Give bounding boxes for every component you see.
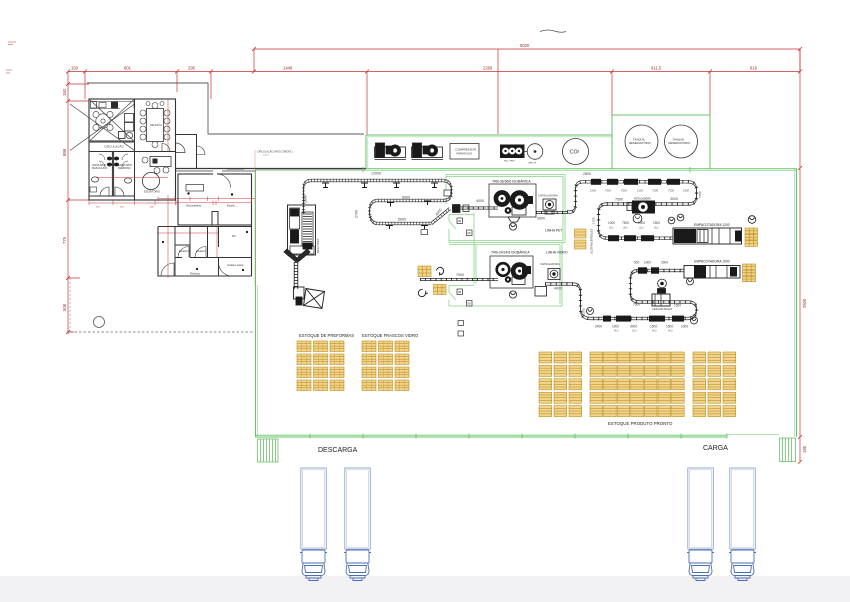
svg-text:CIRCULAÇÃO: CIRCULAÇÃO <box>104 144 124 149</box>
svg-text:1000: 1000 <box>644 261 651 265</box>
svg-text:5600: 5600 <box>398 218 406 222</box>
svg-text:DESCARGA: DESCARGA <box>318 447 358 454</box>
svg-text:5020: 5020 <box>520 43 530 48</box>
svg-text:TRB-24/24/6 ISOBÁRICA: TRB-24/24/6 ISOBÁRICA <box>491 251 530 255</box>
svg-text:3000: 3000 <box>670 197 678 201</box>
svg-text:1400x1050 PALLET: 1400x1050 PALLET <box>652 308 673 311</box>
svg-text:1000: 1000 <box>608 221 615 225</box>
svg-text:1500: 1500 <box>650 325 657 329</box>
svg-text:1500: 1500 <box>590 189 596 193</box>
svg-text:2800: 2800 <box>304 195 308 203</box>
svg-text:7500: 7500 <box>633 303 640 307</box>
svg-text:1000: 1000 <box>681 325 688 329</box>
svg-text:RESERVATÓRIO: RESERVATÓRIO <box>669 140 692 145</box>
svg-text:(2x): (2x) <box>639 226 644 230</box>
svg-text:WC: WC <box>232 235 236 238</box>
svg-text:150: 150 <box>62 88 67 96</box>
svg-text:(4x): (4x) <box>614 329 619 333</box>
svg-text:295: 295 <box>188 66 196 71</box>
svg-text:(6x): (6x) <box>609 226 614 230</box>
svg-text:6000: 6000 <box>402 196 410 200</box>
svg-text:775: 775 <box>62 236 67 244</box>
svg-text:2400: 2400 <box>595 325 602 329</box>
svg-text:7500: 7500 <box>652 189 658 193</box>
svg-text:FEMININO: FEMININO <box>118 166 131 170</box>
svg-text:801: 801 <box>124 66 132 71</box>
svg-text:3000: 3000 <box>630 325 637 329</box>
svg-text:GB: GB <box>458 220 462 223</box>
svg-text:508: 508 <box>62 303 67 311</box>
svg-text:MULTIPET: MULTIPET <box>316 238 320 253</box>
svg-text:ESTOQUE PRODUTO PRONTO: ESTOQUE PRODUTO PRONTO <box>608 421 673 426</box>
svg-text:SEC. FRIO: SEC. FRIO <box>504 161 515 163</box>
svg-text:(4x): (4x) <box>652 329 657 333</box>
svg-text:Vestiário sócios: Vestiário sócios <box>227 264 244 267</box>
svg-text:LINHA VIDRO: LINHA VIDRO <box>546 251 568 255</box>
svg-text:1500: 1500 <box>637 189 643 193</box>
svg-text:1500: 1500 <box>674 304 681 308</box>
svg-text:7500: 7500 <box>615 198 623 202</box>
svg-text:CO²: CO² <box>570 150 580 156</box>
svg-text:ROTULADORA: ROTULADORA <box>634 198 651 201</box>
svg-text:12000: 12000 <box>371 172 381 176</box>
svg-text:7500: 7500 <box>668 189 674 193</box>
svg-text:GB: GB <box>467 232 471 235</box>
svg-text:CIRCULAÇÃO (PISO CIMENT.): CIRCULAÇÃO (PISO CIMENT.) <box>257 151 293 154</box>
svg-text:1500: 1500 <box>638 221 645 225</box>
svg-text:7500: 7500 <box>456 273 464 277</box>
svg-text:GER. N²: GER. N² <box>528 162 537 165</box>
svg-text:ESTOQUE DE PREFORMAS: ESTOQUE DE PREFORMAS <box>299 333 354 338</box>
svg-text:1500: 1500 <box>653 221 660 225</box>
svg-text:GB: GB <box>458 291 462 294</box>
svg-text:ESTOQUE FRASCOS VIDRO: ESTOQUE FRASCOS VIDRO <box>362 333 419 338</box>
svg-text:Almoxarifado: Almoxarifado <box>186 204 202 208</box>
svg-text:Exped.....: Exped..... <box>227 204 238 208</box>
svg-text:1000: 1000 <box>612 325 619 329</box>
svg-text:7500: 7500 <box>622 221 629 225</box>
svg-text:CAPSULADORA: CAPSULADORA <box>540 262 560 266</box>
svg-text:1200: 1200 <box>582 308 586 315</box>
svg-text:(2x): (2x) <box>632 329 637 333</box>
svg-text:EMPACOTADORA 1000: EMPACOTADORA 1000 <box>694 260 730 264</box>
svg-text:7500: 7500 <box>605 189 611 193</box>
svg-text:(6x): (6x) <box>623 226 628 230</box>
svg-text:1500: 1500 <box>698 191 702 198</box>
svg-text:GB: GB <box>467 303 471 306</box>
svg-text:Refeitório: Refeitório <box>190 273 201 276</box>
svg-text:TRB-36/36/6 ISOBÁRICA: TRB-36/36/6 ISOBÁRICA <box>492 180 531 184</box>
svg-text:3000: 3000 <box>661 261 668 265</box>
svg-text:Lavabo F: Lavabo F <box>196 250 207 253</box>
svg-text:500: 500 <box>634 261 640 265</box>
svg-text:RESERVATÓRIO: RESERVATÓRIO <box>629 140 652 145</box>
svg-text:e=2cm: e=2cm <box>263 155 269 157</box>
svg-text:3500: 3500 <box>537 217 545 221</box>
svg-text:911,5: 911,5 <box>651 66 662 71</box>
svg-text:2269: 2269 <box>483 66 493 71</box>
svg-text:LINHA PET: LINHA PET <box>545 229 562 233</box>
svg-text:7500: 7500 <box>621 189 627 193</box>
svg-text:CARGA: CARGA <box>703 445 728 452</box>
svg-text:1500: 1500 <box>683 189 689 193</box>
svg-text:PARAFUSO: PARAFUSO <box>457 152 473 156</box>
svg-text:1500: 1500 <box>666 325 673 329</box>
svg-text:4000: 4000 <box>476 199 484 203</box>
svg-text:195: 195 <box>802 445 807 453</box>
svg-text:Lavabo M: Lavabo M <box>179 250 190 253</box>
svg-text:2700: 2700 <box>355 210 359 218</box>
svg-text:1449: 1449 <box>283 66 293 71</box>
svg-text:(6x): (6x) <box>654 226 659 230</box>
svg-text:898: 898 <box>62 148 67 156</box>
svg-text:819: 819 <box>750 66 758 71</box>
svg-text:MASCULINO: MASCULINO <box>92 166 107 170</box>
svg-text:2800: 2800 <box>583 172 591 176</box>
svg-text:4000: 4000 <box>554 287 562 291</box>
svg-text:EMPACOTADORA 1200: EMPACOTADORA 1200 <box>694 223 730 227</box>
svg-text:1700: 1700 <box>592 217 596 224</box>
svg-text:(4x): (4x) <box>668 329 673 333</box>
svg-text:ESTOQUE PALLETS: ESTOQUE PALLETS <box>590 229 594 254</box>
svg-text:CAPSULADORA: CAPSULADORA <box>538 194 558 198</box>
svg-text:150: 150 <box>71 66 79 71</box>
svg-text:2500: 2500 <box>802 298 807 308</box>
